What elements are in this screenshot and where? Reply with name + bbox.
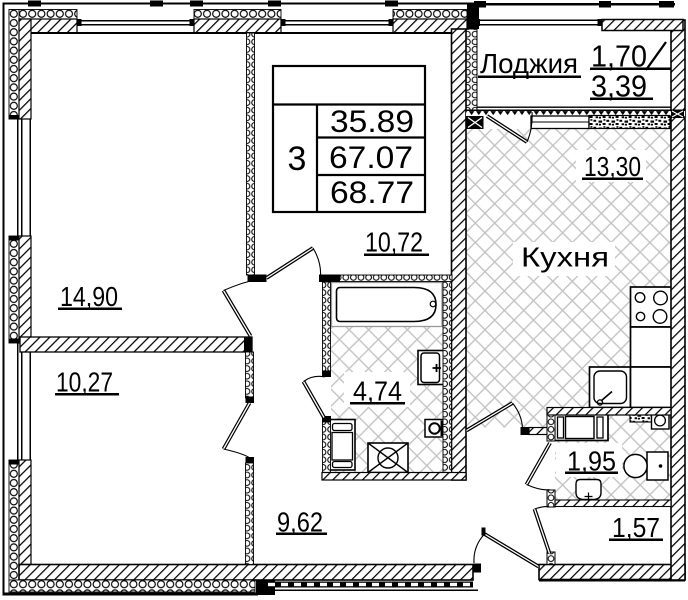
svg-text:3: 3 bbox=[288, 140, 307, 178]
svg-text:Кухня: Кухня bbox=[521, 242, 609, 273]
svg-text:68.77: 68.77 bbox=[330, 174, 414, 210]
svg-text:10,72: 10,72 bbox=[365, 227, 423, 258]
svg-text:14,90: 14,90 bbox=[60, 281, 118, 312]
svg-text:35.89: 35.89 bbox=[330, 103, 414, 139]
svg-text:13,30: 13,30 bbox=[584, 151, 641, 182]
svg-text:1,57: 1,57 bbox=[612, 512, 660, 543]
svg-text:67.07: 67.07 bbox=[329, 139, 413, 175]
svg-text:4,74: 4,74 bbox=[353, 376, 402, 407]
svg-text:Лоджия: Лоджия bbox=[480, 48, 578, 79]
svg-text:10,27: 10,27 bbox=[56, 367, 113, 398]
